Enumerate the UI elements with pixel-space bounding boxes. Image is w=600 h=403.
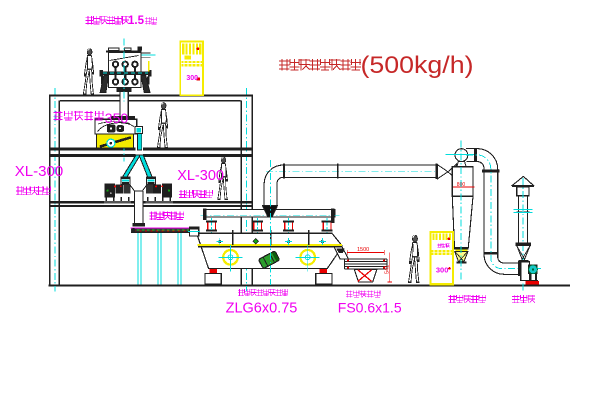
svg-text:XL-300: XL-300 — [177, 168, 224, 184]
svg-text:1500: 1500 — [357, 247, 369, 253]
svg-text:(500kg/h): (500kg/h) — [361, 52, 474, 79]
svg-text:XL-300: XL-300 — [15, 163, 63, 180]
svg-text:541: 541 — [385, 265, 391, 274]
svg-text:FS0.6x1.5: FS0.6x1.5 — [338, 300, 402, 316]
svg-text:1.5: 1.5 — [128, 15, 145, 27]
svg-text:300: 300 — [436, 266, 449, 275]
svg-text:300: 300 — [186, 75, 198, 82]
svg-text:ZLG6x0.75: ZLG6x0.75 — [226, 301, 298, 317]
svg-text:350: 350 — [105, 110, 129, 126]
